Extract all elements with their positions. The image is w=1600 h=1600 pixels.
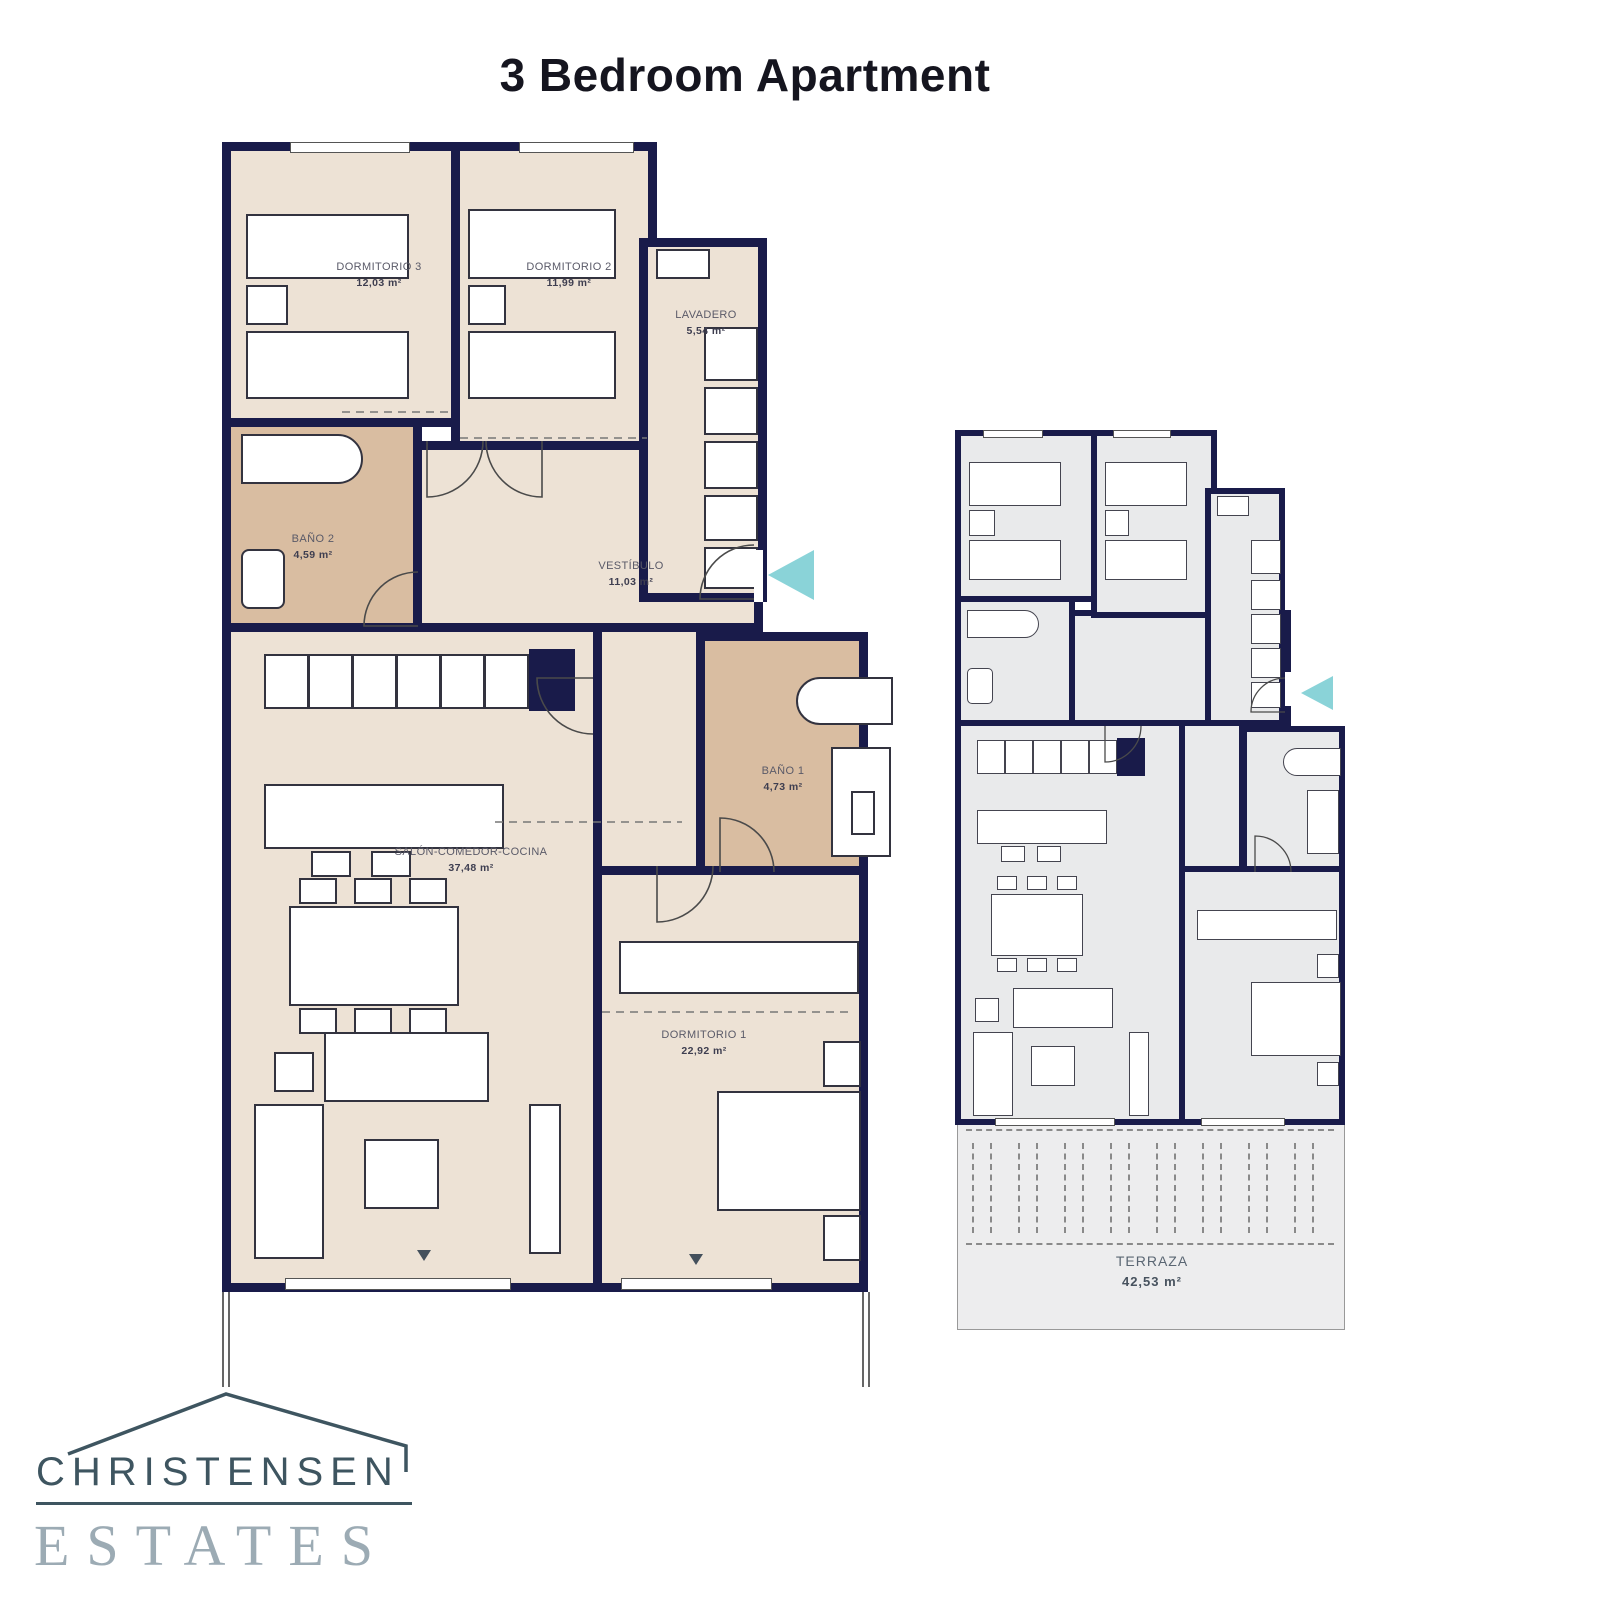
room-label: DORMITORIO 1 22,92 m² [661, 1027, 746, 1059]
mini-bano-2 [955, 596, 1075, 726]
room-name: VESTÍBULO [598, 558, 663, 575]
entrance-arrow-icon [768, 550, 814, 600]
balcony-line [222, 1292, 230, 1387]
kitchen-counter [396, 654, 441, 709]
kitchen-counter [1033, 740, 1061, 774]
pergola-band [966, 1129, 1334, 1245]
window [1113, 430, 1171, 438]
kitchen-island [977, 810, 1107, 844]
room-label: DORMITORIO 3 12,03 m² [336, 259, 421, 291]
mini-lavadero [1205, 488, 1285, 726]
mini-dormitorio-3 [955, 430, 1097, 602]
room-area: 5,54 m² [675, 324, 736, 340]
room-dormitorio-2: DORMITORIO 2 11,99 m² [451, 142, 657, 450]
page-title: 3 Bedroom Apartment [0, 48, 1490, 102]
window [621, 1278, 772, 1290]
pergola-column [1064, 1143, 1084, 1233]
brochure-page: 3 Bedroom Apartment VESTÍBULO 11,03 m² D… [0, 0, 1600, 1600]
room-area: 11,99 m² [526, 276, 611, 292]
room-name: LAVADERO [675, 307, 736, 324]
floor-plan-main: VESTÍBULO 11,03 m² DORMITORIO 3 12,03 m²… [222, 142, 870, 1402]
entrance-arrow-icon [1301, 676, 1333, 710]
kitchen-counter [352, 654, 397, 709]
room-dormitorio-1: DORMITORIO 1 22,92 m² [593, 866, 868, 1292]
chaise-sofa [973, 1032, 1013, 1116]
pergola-column [1156, 1143, 1176, 1233]
window [290, 142, 410, 153]
room-name: BAÑO 1 [762, 763, 805, 780]
toilet [967, 668, 993, 704]
kitchen-counter [308, 654, 353, 709]
bed [1105, 540, 1187, 580]
nightstand [246, 285, 288, 325]
appliance [1251, 648, 1281, 678]
chair [1057, 958, 1077, 972]
room-label: BAÑO 1 4,73 m² [762, 763, 805, 795]
kitchen-counter [1089, 740, 1117, 774]
brand-name: CHRISTENSEN [36, 1450, 400, 1495]
pergola-column [1202, 1143, 1222, 1233]
window [983, 430, 1043, 438]
room-terraza: TERRAZA 42,53 m² [957, 1125, 1345, 1330]
pergola-column [1248, 1143, 1268, 1233]
room-name: DORMITORIO 3 [336, 259, 421, 276]
bathtub [241, 434, 363, 484]
kitchen-counter [977, 740, 1005, 774]
direction-triangle [417, 1250, 431, 1261]
chair [409, 1008, 447, 1034]
wardrobe [619, 941, 859, 994]
mini-corridor [1179, 720, 1245, 872]
pergola-column [1018, 1143, 1038, 1233]
nightstand [823, 1215, 861, 1261]
room-dormitorio-3: DORMITORIO 3 12,03 m² [222, 142, 460, 427]
pergola-column [1294, 1143, 1314, 1233]
toilet [241, 549, 285, 609]
stool [311, 851, 351, 877]
corridor [593, 623, 705, 875]
brand-divider [36, 1502, 412, 1505]
appliance [704, 495, 758, 541]
bathtub [1283, 748, 1341, 776]
mini-bano-1 [1241, 726, 1345, 872]
room-bano-1: BAÑO 1 4,73 m² [696, 632, 868, 875]
brand-logo: CHRISTENSEN ESTATES [30, 1388, 460, 1598]
appliance [1251, 580, 1281, 610]
appliance [704, 441, 758, 489]
room-label: TERRAZA 42,53 m² [1116, 1251, 1188, 1292]
balcony-line [862, 1292, 870, 1387]
fridge [529, 649, 575, 711]
window [1201, 1118, 1285, 1126]
chair [354, 1008, 392, 1034]
sofa [324, 1032, 489, 1102]
appliance [1251, 614, 1281, 644]
chair [1027, 876, 1047, 890]
window-sill [656, 249, 710, 279]
mini-entrance-opening [1285, 672, 1291, 706]
window [995, 1118, 1115, 1126]
nightstand [1317, 954, 1339, 978]
floor-plan-mini: TERRAZA 42,53 m² [955, 430, 1355, 1335]
chair [1057, 876, 1077, 890]
coffee-table [1031, 1046, 1075, 1086]
mini-dormitorio-2 [1091, 430, 1217, 618]
room-area: 4,59 m² [292, 548, 335, 564]
chair [997, 958, 1017, 972]
pergola-column [1110, 1143, 1130, 1233]
room-salon-comedor-cocina: SALÓN-COMEDOR-COCINA 37,48 m² [222, 623, 602, 1292]
dining-table [991, 894, 1083, 956]
kitchen-counter [1005, 740, 1033, 774]
window-sill [1217, 496, 1249, 516]
wardrobe [1197, 910, 1337, 940]
pergola-column [972, 1143, 992, 1233]
room-area: 4,73 m² [762, 780, 805, 796]
room-name: BAÑO 2 [292, 531, 335, 548]
room-lavadero: LAVADERO 5,54 m² [639, 238, 767, 602]
room-bano-2: BAÑO 2 4,59 m² [222, 418, 422, 632]
chaise-sofa [254, 1104, 324, 1259]
nightstand [468, 285, 506, 325]
bed [969, 462, 1061, 506]
nightstand [969, 510, 995, 536]
chair [299, 878, 337, 904]
bed [1105, 462, 1187, 506]
chair [299, 1008, 337, 1034]
room-label: DORMITORIO 2 11,99 m² [526, 259, 611, 291]
room-name: DORMITORIO 2 [526, 259, 611, 276]
brand-type: ESTATES [34, 1512, 390, 1579]
sofa [1013, 988, 1113, 1028]
kitchen-counter [264, 654, 309, 709]
window [285, 1278, 511, 1290]
appliance [704, 387, 758, 435]
mini-dormitorio-1 [1179, 866, 1345, 1125]
room-label: LAVADERO 5,54 m² [675, 307, 736, 339]
room-name: DORMITORIO 1 [661, 1027, 746, 1044]
tv-stand [529, 1104, 561, 1254]
room-area: 11,03 m² [598, 575, 663, 591]
sink [851, 791, 875, 835]
room-area: 22,92 m² [661, 1044, 746, 1060]
coffee-table [364, 1139, 439, 1209]
bed [1251, 982, 1341, 1056]
window [519, 142, 634, 153]
sink-counter [1307, 790, 1339, 854]
room-label: BAÑO 2 4,59 m² [292, 531, 335, 563]
entrance-opening [754, 550, 763, 602]
appliance [704, 547, 758, 589]
nightstand [823, 1041, 861, 1087]
direction-triangle [689, 1254, 703, 1265]
stool [1001, 846, 1025, 862]
appliance [1251, 540, 1281, 574]
chair [409, 878, 447, 904]
nightstand [1105, 510, 1129, 536]
room-name: SALÓN-COMEDOR-COCINA [395, 844, 548, 861]
bed [717, 1091, 861, 1211]
bathtub [967, 610, 1039, 638]
room-label: VESTÍBULO 11,03 m² [598, 558, 663, 590]
nightstand [1317, 1062, 1339, 1086]
stool [1037, 846, 1061, 862]
kitchen-island [264, 784, 504, 849]
kitchen-counter [484, 654, 529, 709]
dining-table [289, 906, 459, 1006]
chair [997, 876, 1017, 890]
fridge [1117, 738, 1145, 776]
mini-salon [955, 720, 1185, 1125]
room-area: 42,53 m² [1116, 1272, 1188, 1292]
chair [354, 878, 392, 904]
room-label: SALÓN-COMEDOR-COCINA 37,48 m² [395, 844, 548, 876]
armchair [274, 1052, 314, 1092]
bed [969, 540, 1061, 580]
kitchen-counter [440, 654, 485, 709]
chair [1027, 958, 1047, 972]
armchair [975, 998, 999, 1022]
tv-stand [1129, 1032, 1149, 1116]
room-name: TERRAZA [1116, 1251, 1188, 1272]
bathtub [796, 677, 893, 725]
appliance [1251, 682, 1281, 708]
bed [468, 331, 616, 399]
room-area: 37,48 m² [395, 861, 548, 877]
room-area: 12,03 m² [336, 276, 421, 292]
kitchen-counter [1061, 740, 1089, 774]
bed [246, 331, 409, 399]
